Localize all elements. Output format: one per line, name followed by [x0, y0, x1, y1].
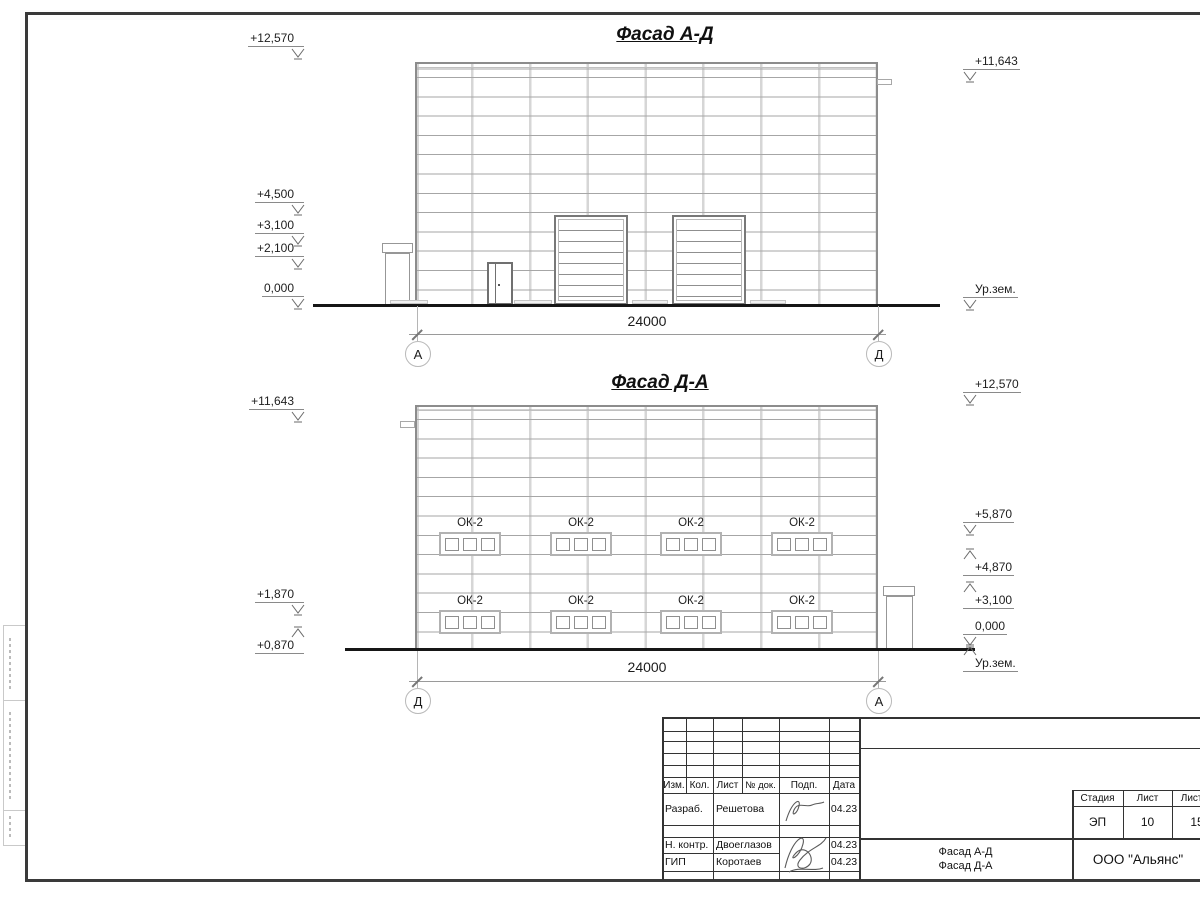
tb-stage-value: ЭП [1072, 806, 1123, 838]
elevation-arrow-down-icon [291, 604, 305, 616]
elevation-arrow-down-icon [291, 298, 305, 310]
elevation-arrow-up-icon [963, 548, 977, 560]
window-pane [592, 616, 606, 629]
dimension-label-bottom: 24000 [597, 659, 697, 675]
tb-doc-title: Фасад А-Д Фасад Д-А [859, 838, 1072, 880]
ground-line-bottom [345, 648, 975, 651]
tb-line [662, 741, 859, 742]
window-mark-label: ОК-2 [771, 595, 833, 607]
window-mark-label: ОК-2 [439, 595, 501, 607]
elevation-value: +11,643 [249, 394, 304, 410]
window-mark-label: ОК-2 [660, 517, 722, 529]
sectional-gate-1 [554, 215, 628, 305]
tb-doc-title-line1: Фасад А-Д [938, 845, 992, 859]
ribbon-window [550, 532, 612, 556]
elevation-value: +4,500 [255, 187, 304, 203]
window-pane [574, 616, 588, 629]
roof-pipe [877, 79, 892, 85]
drawing-sheet: Фасад А-Д 24000 А Д +12,570 +4,500 [0, 0, 1200, 900]
window-pane [556, 616, 570, 629]
elevation-mark: +11,643 [234, 394, 304, 410]
elevation-mark: 0,000 [234, 281, 304, 297]
parapet-line [417, 410, 876, 411]
elevation-arrow-down-icon [291, 204, 305, 216]
elevation-mark: +2,100 [234, 241, 304, 257]
frame-left [25, 12, 28, 882]
extension-line [417, 306, 418, 341]
tb-line [662, 825, 859, 826]
window-pane [684, 538, 698, 551]
elevation-value: 0,000 [963, 619, 1007, 635]
porch-body [886, 596, 913, 649]
tb-line [859, 748, 1200, 749]
elevation-arrow-down-icon [963, 71, 977, 83]
gate-slats [676, 219, 742, 301]
tb-col-izm: Изм. [662, 777, 686, 793]
porch-cap [883, 586, 915, 596]
elevation-value: +3,100 [255, 218, 304, 234]
tb-stage-header: Стадия [1072, 790, 1123, 806]
window-mark-label: ОК-2 [439, 517, 501, 529]
tb-line [662, 753, 859, 754]
tb-col-list: Лист [713, 777, 742, 793]
porch-cap [382, 243, 413, 253]
elevation-value: +5,870 [963, 507, 1014, 523]
ribbon-window [550, 610, 612, 634]
ribbon-window [439, 532, 501, 556]
margin-box-line [3, 625, 4, 845]
window-pane [795, 538, 809, 551]
signature [782, 795, 827, 830]
window-pane [813, 538, 827, 551]
elevation-arrow-down-icon [291, 411, 305, 423]
elevation-mark: 0,000 [963, 619, 1033, 635]
elevation-mark: +12,570 [234, 31, 304, 47]
axis-bubble-a-bottom: А [866, 688, 892, 714]
tb-date: 04.23 [829, 853, 859, 871]
elevation-value: +12,570 [963, 377, 1021, 393]
elevation-arrow-down-icon [963, 299, 977, 311]
elevation-value: Ур.зем. [963, 656, 1018, 672]
dimension-line [409, 681, 886, 682]
tb-doc-title-line2: Фасад Д-А [938, 859, 992, 873]
window-pane [463, 538, 477, 551]
facade-top-title: Фасад А-Д [555, 24, 775, 46]
tb-sheet-value: 10 [1123, 806, 1172, 838]
window-pane [684, 616, 698, 629]
signature [779, 828, 831, 881]
elevation-value: +2,100 [255, 241, 304, 257]
tb-sheets-value: 15 [1172, 806, 1200, 838]
ground-line-top [313, 304, 940, 307]
roof-pipe [400, 421, 415, 428]
window-pane [702, 616, 716, 629]
elevation-value: +4,870 [963, 560, 1014, 576]
tb-col-ndok: № док. [742, 777, 779, 793]
tb-name: Решетова [713, 793, 779, 825]
margin-vertical-text [9, 712, 11, 800]
elevation-mark: +0,870 [234, 638, 304, 654]
axis-bubble-d-top: Д [866, 341, 892, 367]
window-pane [481, 616, 495, 629]
window-pane [481, 538, 495, 551]
elevation-value: +3,100 [963, 593, 1014, 609]
window-pane [445, 616, 459, 629]
elevation-arrow-down-icon [291, 258, 305, 270]
axis-bubble-d-bottom: Д [405, 688, 431, 714]
ribbon-window [660, 610, 722, 634]
elevation-mark: +12,570 [963, 377, 1033, 393]
window-mark-label: ОК-2 [550, 517, 612, 529]
panel-grid [417, 64, 876, 304]
tb-date: 04.23 [829, 837, 859, 853]
window-pane [592, 538, 606, 551]
tb-role: Н. контр. [662, 837, 713, 853]
ribbon-window [660, 532, 722, 556]
axis-letter: Д [875, 347, 884, 362]
window-mark-label: ОК-2 [550, 595, 612, 607]
window-mark-label: ОК-2 [660, 595, 722, 607]
extension-line [878, 306, 879, 341]
elevation-mark: +5,870 [963, 507, 1033, 523]
window-pane [666, 616, 680, 629]
tb-name: Двоеглазов [713, 837, 779, 853]
tb-company: ООО "Альянс" [1072, 838, 1200, 880]
window-pane [813, 616, 827, 629]
window-pane [666, 538, 680, 551]
gate-slats [558, 219, 624, 301]
tb-col-podp: Подп. [779, 777, 829, 793]
elevation-arrow-up-icon [963, 581, 977, 593]
parapet-line [417, 67, 876, 68]
window-pane [795, 616, 809, 629]
elevation-mark: +4,500 [234, 187, 304, 203]
tb-col-kol: Кол. [686, 777, 713, 793]
tb-line [662, 731, 859, 732]
ribbon-window [439, 610, 501, 634]
elevation-mark: Ур.зем. [963, 656, 1033, 672]
ribbon-window [771, 610, 833, 634]
elevation-arrow-down-icon [963, 394, 977, 406]
entrance-door [487, 262, 513, 305]
axis-letter: А [414, 347, 423, 362]
tb-col-data: Дата [829, 777, 859, 793]
elevation-value: Ур.зем. [963, 282, 1018, 298]
tb-line [662, 765, 859, 766]
tb-line [662, 717, 1200, 719]
frame-top [25, 12, 1200, 15]
elevation-arrow-up-icon [291, 626, 305, 638]
elevation-mark: +1,870 [234, 587, 304, 603]
ribbon-window [771, 532, 833, 556]
sectional-gate-2 [672, 215, 746, 305]
elevation-mark: +3,100 [234, 218, 304, 234]
elevation-value: +12,570 [248, 31, 304, 47]
axis-letter: А [875, 694, 884, 709]
door-leaf-divider [495, 264, 496, 303]
facade-bottom-title: Фасад Д-А [550, 372, 770, 394]
tb-date: 04.23 [829, 793, 859, 825]
margin-box-line [3, 700, 25, 701]
margin-box-line [3, 845, 25, 846]
porch-body [385, 253, 410, 305]
margin-box-line [3, 625, 25, 626]
window-pane [574, 538, 588, 551]
tb-role: Разраб. [662, 793, 713, 825]
window-mark-label: ОК-2 [771, 517, 833, 529]
facade-top-building [415, 62, 878, 306]
tb-name: Коротаев [713, 853, 779, 871]
tb-role: ГИП [662, 853, 713, 871]
axis-bubble-a-top: А [405, 341, 431, 367]
tb-sheet-header: Лист [1123, 790, 1172, 806]
dimension-label-top: 24000 [597, 313, 697, 329]
elevation-value: +0,870 [255, 638, 304, 654]
elevation-arrow-down-icon [291, 48, 305, 60]
elevation-mark: +4,870 [963, 560, 1033, 576]
elevation-value: +1,870 [255, 587, 304, 603]
window-pane [463, 616, 477, 629]
window-pane [556, 538, 570, 551]
elevation-value: +11,643 [963, 54, 1020, 70]
margin-vertical-text [9, 638, 11, 690]
window-pane [702, 538, 716, 551]
margin-vertical-text [9, 816, 11, 840]
elevation-arrow-down-icon [963, 524, 977, 536]
window-pane [777, 616, 791, 629]
elevation-arrow-up-icon [963, 644, 977, 656]
elevation-mark: +3,100 [963, 593, 1033, 609]
tb-sheets-header: Листов [1172, 790, 1200, 806]
window-pane [445, 538, 459, 551]
margin-box-line [3, 810, 25, 811]
window-pane [777, 538, 791, 551]
elevation-value: 0,000 [262, 281, 304, 297]
axis-letter: Д [414, 694, 423, 709]
dimension-line [409, 334, 886, 335]
elevation-mark: Ур.зем. [963, 282, 1033, 298]
elevation-mark: +11,643 [963, 54, 1033, 70]
door-handle [498, 284, 500, 286]
